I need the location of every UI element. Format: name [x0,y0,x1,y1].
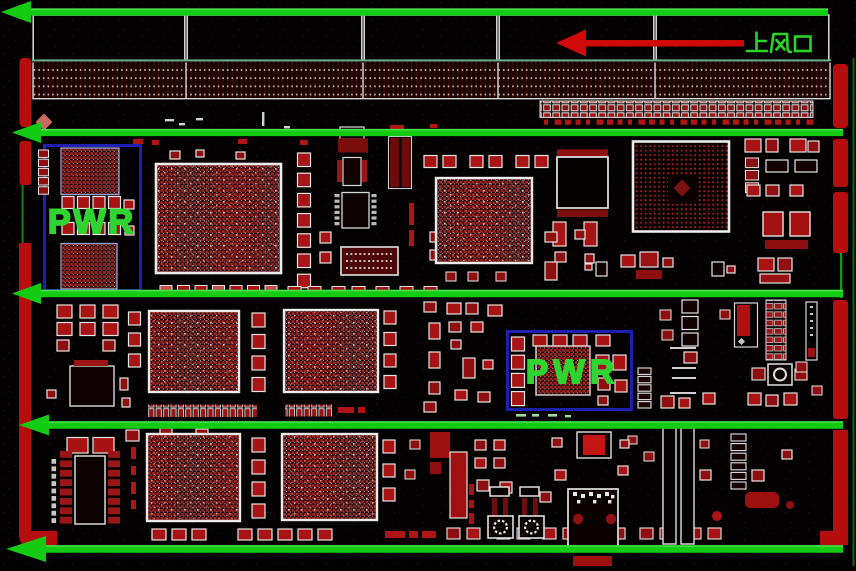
svg-text:PWR: PWR [526,353,614,390]
svg-text:PWR: PWR [48,203,133,241]
